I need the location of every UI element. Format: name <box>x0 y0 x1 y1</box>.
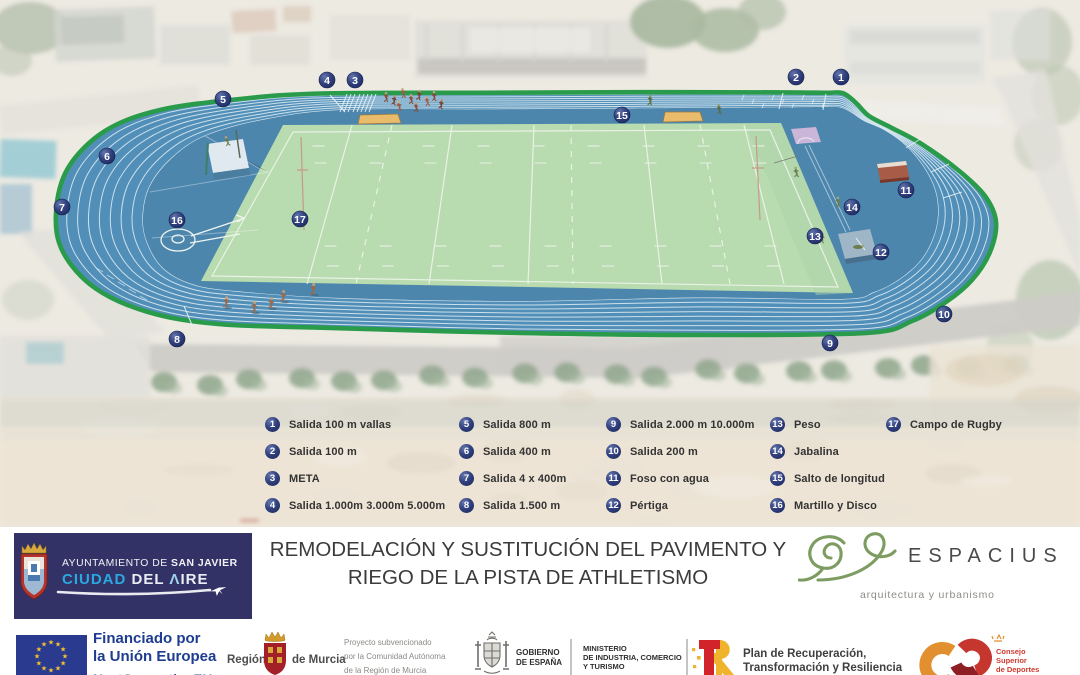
svg-text:★: ★ <box>55 665 61 673</box>
svg-text:★: ★ <box>34 653 40 661</box>
svg-text:GOBIERNO: GOBIERNO <box>516 648 560 657</box>
svg-text:de Murcia: de Murcia <box>292 654 346 666</box>
svg-text:★: ★ <box>36 660 42 668</box>
svg-text:AYUNTAMIENTO DE SAN JAVIER: AYUNTAMIENTO DE SAN JAVIER <box>62 558 238 569</box>
svg-text:Consejo: Consejo <box>996 647 1026 656</box>
svg-text:Proyecto subvencionado: Proyecto subvencionado <box>344 638 432 647</box>
svg-text:Y TURISMO: Y TURISMO <box>583 662 625 671</box>
svg-text:ESPACIUS: ESPACIUS <box>908 545 1064 567</box>
svg-text:por la Comunidad Autónoma: por la Comunidad Autónoma <box>344 652 446 661</box>
svg-text:de Deportes: de Deportes <box>996 665 1039 674</box>
svg-text:DE INDUSTRIA, COMERCIO: DE INDUSTRIA, COMERCIO <box>583 653 682 662</box>
svg-text:★: ★ <box>48 639 54 647</box>
svg-text:★: ★ <box>41 640 47 648</box>
svg-text:MINISTERIO: MINISTERIO <box>583 644 627 653</box>
svg-text:Región: Región <box>227 654 266 666</box>
svg-text:★: ★ <box>60 646 66 654</box>
svg-text:Transformación y Resiliencia: Transformación y Resiliencia <box>743 662 903 674</box>
svg-text:DE ESPAÑA: DE ESPAÑA <box>516 658 562 667</box>
svg-text:arquitectura y urbanismo: arquitectura y urbanismo <box>860 589 995 601</box>
svg-text:CIUDAD DEL ΛIRE: CIUDAD DEL ΛIRE <box>62 571 208 588</box>
svg-text:★: ★ <box>48 667 54 675</box>
svg-text:Financiado por: Financiado por <box>93 630 201 647</box>
svg-text:Plan de Recuperación,: Plan de Recuperación, <box>743 648 866 660</box>
svg-text:★: ★ <box>62 653 68 661</box>
svg-text:la Unión Europea: la Unión Europea <box>93 648 217 665</box>
svg-text:de la Región de Murcia: de la Región de Murcia <box>344 666 427 675</box>
svg-text:Superior: Superior <box>996 656 1027 665</box>
